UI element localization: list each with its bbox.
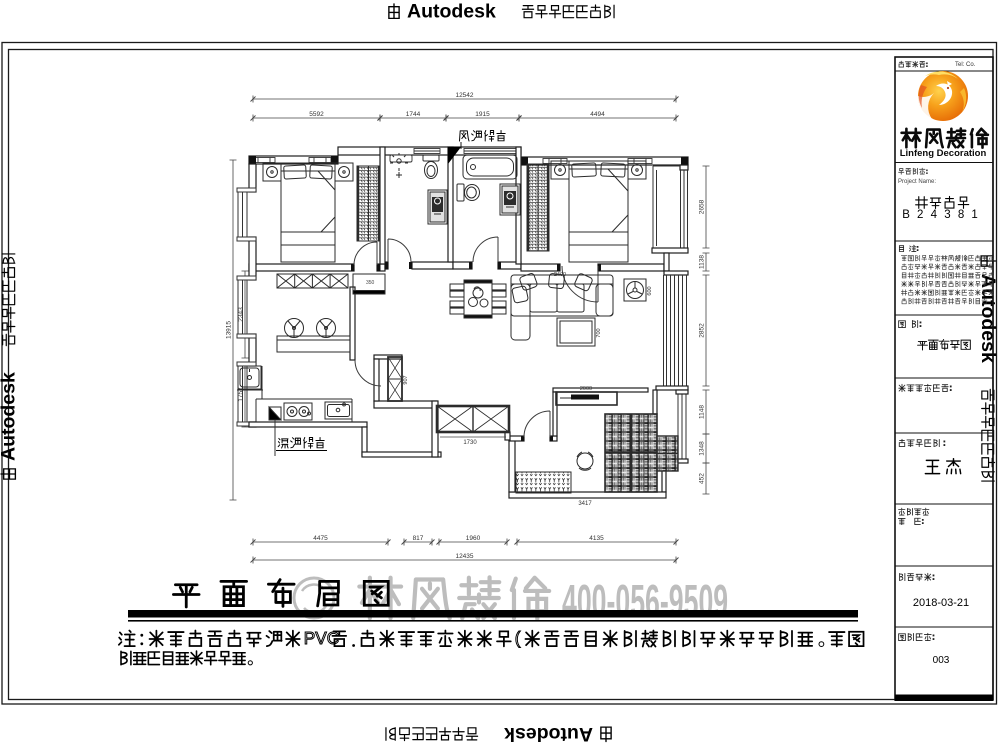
svg-text::: : [932, 573, 934, 582]
svg-text:4494: 4494 [590, 111, 605, 118]
svg-text:Autodesk: Autodesk [407, 1, 496, 23]
svg-text::: : [950, 384, 952, 393]
svg-text:1744: 1744 [406, 111, 421, 118]
svg-text:452: 452 [699, 473, 706, 484]
svg-text:Autodesk: Autodesk [977, 274, 999, 363]
svg-text:3417: 3417 [578, 501, 592, 507]
svg-text:003: 003 [933, 655, 950, 666]
svg-text:B 2 4 3 8 1: B 2 4 3 8 1 [902, 209, 980, 221]
svg-text:12435: 12435 [455, 553, 473, 560]
svg-text:1148: 1148 [699, 405, 706, 419]
svg-text:Autodesk: Autodesk [504, 723, 593, 745]
svg-text:4135: 4135 [589, 535, 604, 542]
svg-text::: : [922, 517, 924, 526]
svg-text:2400: 2400 [554, 272, 566, 278]
svg-text::: : [917, 246, 919, 253]
svg-text:2343: 2343 [238, 307, 245, 322]
svg-text:400-056-9509: 400-056-9509 [562, 575, 728, 626]
svg-text:1348: 1348 [699, 441, 706, 456]
svg-text:2000: 2000 [580, 386, 592, 392]
svg-text:1138: 1138 [699, 255, 706, 269]
svg-text:817: 817 [413, 535, 424, 542]
svg-text:700: 700 [596, 328, 602, 337]
svg-text:Linfeng Decoration: Linfeng Decoration [900, 148, 987, 159]
svg-text:Tel: Co.: Tel: Co. [955, 62, 976, 68]
svg-text:(: ( [515, 628, 521, 648]
svg-text:2852: 2852 [699, 323, 706, 338]
svg-text:907: 907 [403, 375, 409, 384]
svg-text:13915: 13915 [226, 321, 233, 339]
svg-text:2018-03-21: 2018-03-21 [913, 597, 969, 609]
svg-text:Project Name:: Project Name: [898, 179, 936, 185]
svg-text:2658: 2658 [699, 199, 706, 214]
svg-text:1915: 1915 [475, 111, 490, 118]
svg-text:600: 600 [647, 286, 653, 295]
svg-text::: : [926, 168, 928, 175]
svg-text:5592: 5592 [309, 111, 324, 118]
svg-text::: : [941, 439, 945, 448]
svg-text::: : [932, 633, 934, 642]
svg-text:4475: 4475 [313, 535, 328, 542]
svg-text:350: 350 [366, 280, 375, 286]
svg-text:1730: 1730 [463, 440, 477, 446]
svg-text:1960: 1960 [466, 535, 481, 542]
svg-text::: : [919, 320, 921, 329]
svg-text:12542: 12542 [455, 92, 473, 99]
svg-text::: : [926, 61, 928, 68]
svg-text:Autodesk: Autodesk [0, 372, 20, 461]
